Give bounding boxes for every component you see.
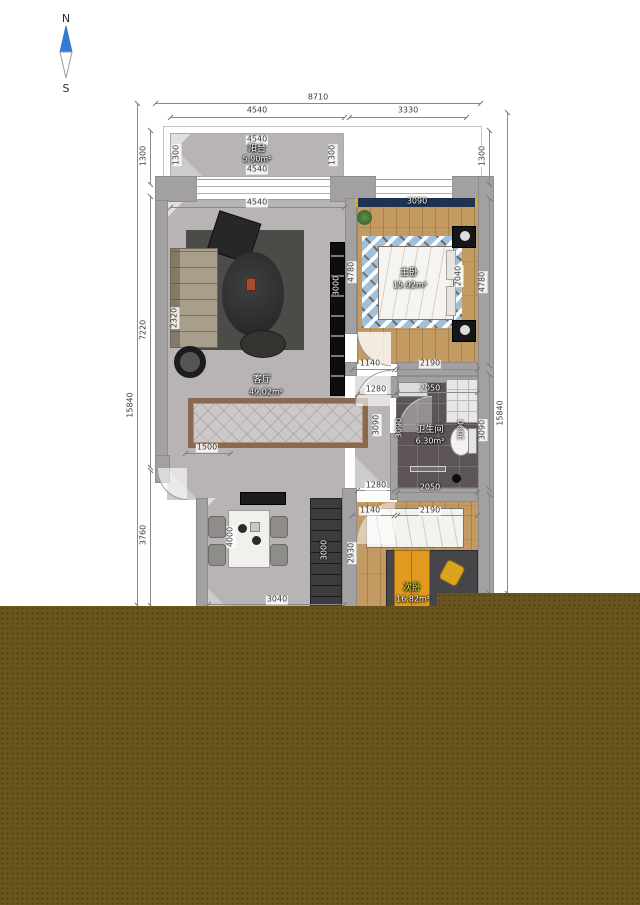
- dim-line-left-7220: [150, 196, 151, 468]
- wall-left-outer: [155, 200, 168, 464]
- dim-balcony-left: 1300: [173, 144, 182, 166]
- dim-living-top: 4540: [246, 199, 268, 208]
- balcony-area: 5.90m²: [243, 156, 272, 165]
- dining-chair: [208, 516, 226, 538]
- dining-chair: [208, 544, 226, 566]
- wall-right-outer: [478, 176, 494, 608]
- dim-line-left-1300: [150, 130, 151, 185]
- dim-bed-width: 2040: [455, 265, 464, 287]
- tv-console: [330, 242, 345, 396]
- dim-top-right-span: 3330: [397, 107, 419, 116]
- compass-needle-icon: [58, 25, 74, 79]
- dim-right-3090: 3090: [479, 419, 488, 441]
- dining-chair: [270, 544, 288, 566]
- dim-line-overall-width: [155, 103, 481, 104]
- dim-line-top-left: [170, 117, 345, 118]
- master-pillow: [446, 286, 456, 316]
- dim-line-right-3090: [489, 374, 490, 490]
- toilet-tank: [468, 428, 477, 454]
- nightstand-lamp: [460, 325, 470, 335]
- olive-overlay-notch: [437, 593, 640, 607]
- entry-door-arc: [157, 468, 187, 500]
- dining-chair: [270, 516, 288, 538]
- dim-line-right-overall: [507, 112, 508, 594]
- dim-hall-bottom: 1280: [365, 482, 387, 491]
- dim-bath-bottom: 2050: [419, 484, 441, 493]
- plant: [357, 210, 372, 225]
- dim-balcony-right: 1300: [329, 144, 338, 166]
- wall-top-left-post: [155, 176, 197, 202]
- dim-master-window: 3090: [406, 198, 428, 207]
- dim-sofa-depth: 2320: [171, 307, 180, 329]
- dim-bath-top: 2050: [419, 385, 441, 394]
- dim-tv-wall: 3000: [333, 275, 342, 297]
- side-table: [174, 346, 206, 378]
- hallway-carpet: [188, 398, 368, 448]
- dim-master-depth: 4780: [348, 261, 357, 283]
- coffee-table: [222, 252, 284, 336]
- dim-hall-height: 3090: [373, 414, 382, 436]
- bathroom-area: 6.30m²: [416, 438, 445, 447]
- dim-line-right-4780: [489, 198, 490, 366]
- dining-plate: [252, 536, 261, 545]
- dim-line-master-wall: [397, 369, 478, 370]
- dining-centerpiece: [250, 522, 260, 532]
- dim-overall-width: 8710: [307, 94, 329, 103]
- dim-right-overall: 15840: [497, 399, 506, 426]
- table-tray-item: [246, 278, 256, 291]
- dim-top-left-span: 4540: [246, 107, 268, 116]
- compass: N S: [48, 12, 84, 95]
- dim-right-4780: 4780: [479, 271, 488, 293]
- dim-second-door: 1140: [359, 507, 381, 516]
- dim-line-1500: [185, 453, 231, 454]
- dim-line-top-right: [349, 117, 467, 118]
- dim-dining-depth: 4000: [227, 526, 236, 548]
- dim-right-1300: 1300: [479, 145, 488, 167]
- pouf: [240, 330, 286, 358]
- bathroom-name: 卫生间: [416, 426, 443, 436]
- master-area: 15.92m²: [393, 282, 427, 291]
- dim-wardrobe-len: 3000: [321, 539, 330, 561]
- master-name: 主卧: [400, 269, 418, 279]
- dim-left-overall: 15840: [127, 391, 136, 418]
- dim-second-wall: 2190: [419, 507, 441, 516]
- olive-overlay-main: [0, 606, 640, 905]
- living-area: 49.02m²: [249, 389, 283, 398]
- dim-line-right-1300: [489, 130, 490, 185]
- towel-bar: [410, 466, 446, 472]
- balcony-name: 阳台: [248, 145, 266, 155]
- dim-line-left-3760: [150, 470, 151, 606]
- dim-balcony-bottom: 4540: [246, 166, 268, 175]
- sideboard: [240, 492, 286, 505]
- dim-left-3760: 3760: [140, 524, 149, 546]
- dim-second-left: 2930: [348, 542, 357, 564]
- compass-north-label: N: [48, 12, 84, 25]
- floor-drain: [452, 474, 461, 483]
- dim-living-niche: 1500: [196, 444, 218, 453]
- dim-left-1300: 1300: [140, 145, 149, 167]
- dim-bath-left: 3090: [396, 417, 405, 439]
- dim-hall-top: 1280: [365, 386, 387, 395]
- dim-master-wall: 2190: [419, 360, 441, 369]
- dim-master-door: 1140: [359, 360, 381, 369]
- living-name: 客厅: [253, 376, 271, 386]
- dim-left-7220: 7220: [140, 319, 149, 341]
- second-name: 次卧: [403, 584, 421, 594]
- dim-line-right-lower: [489, 494, 490, 594]
- compass-south-label: S: [48, 82, 84, 95]
- dining-plate: [238, 524, 247, 533]
- shower-area: [446, 379, 478, 423]
- second-area: 16.82m²: [396, 596, 430, 605]
- nightstand-lamp: [460, 231, 470, 241]
- dim-bath-right: 3090: [458, 419, 467, 441]
- dim-line-master-door: [352, 369, 395, 370]
- dim-bottom-width: 3040: [266, 596, 288, 605]
- sofa: [170, 248, 218, 348]
- wall-left-lower: [196, 498, 208, 608]
